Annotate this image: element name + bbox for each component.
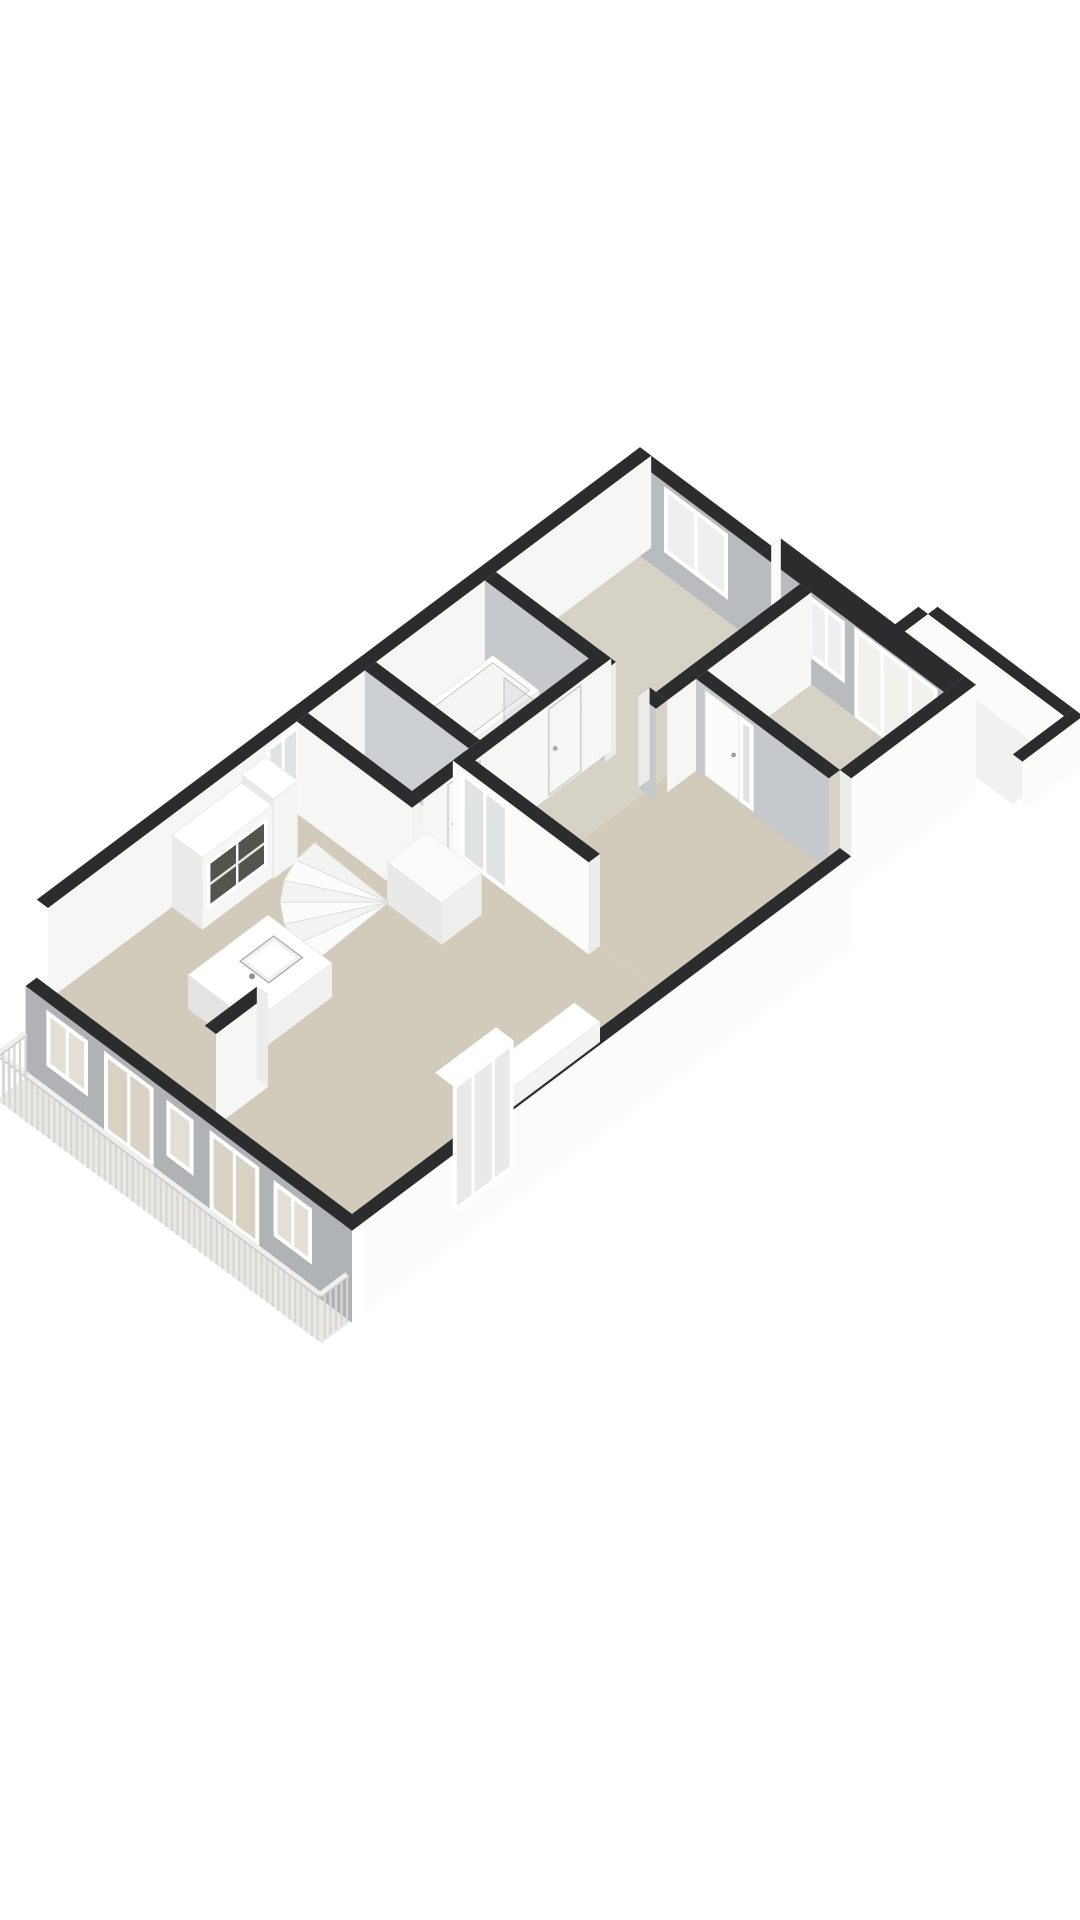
bedroom-2-door-sidelight xyxy=(739,715,753,812)
east-step-cap xyxy=(840,770,851,856)
floorplan-page xyxy=(0,0,1080,1920)
floorplan-3d-render xyxy=(0,0,1080,1920)
